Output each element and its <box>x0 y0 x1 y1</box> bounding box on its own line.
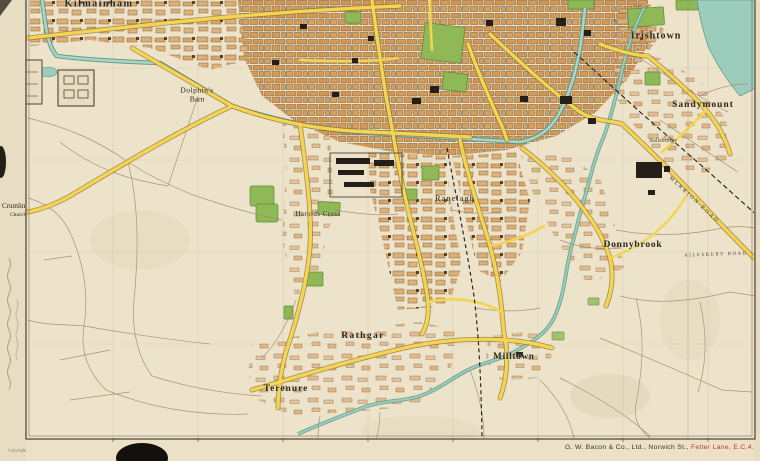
map-artwork <box>0 0 760 461</box>
map-canvas[interactable]: Kilmainham Dolphin's Barn Irishtown Sand… <box>0 0 760 461</box>
label-crumlin: Crumlin <box>2 202 25 210</box>
publisher-name: G. W. Bacon & Co., Ltd., Norwich St., <box>565 444 689 451</box>
label-sandymount: Sandymount <box>672 100 734 110</box>
label-kilmainham: Kilmainham <box>65 0 134 10</box>
label-dolphins: Dolphin's <box>180 86 213 95</box>
label-ballsbridge: Ballsbridge <box>649 138 677 144</box>
label-harolds-cross: Harolds Cross <box>295 210 340 218</box>
label-ranelagh: Ranelagh <box>435 193 475 203</box>
label-terenure: Terenure <box>264 384 309 394</box>
label-rathgar: Rathgar <box>341 331 385 341</box>
label-barn: Barn <box>190 95 205 104</box>
label-crumlin-church: Church <box>10 212 26 218</box>
label-copyright: Copyright <box>8 448 26 453</box>
label-irishtown: Irishtown <box>631 31 682 42</box>
label-milltown: Milltown <box>493 351 534 361</box>
publisher-imprint: G. W. Bacon & Co., Ltd., Norwich St., Fe… <box>565 444 754 451</box>
publisher-address: Fetter Lane, E.C.4. <box>691 444 754 451</box>
label-donnybrook: Donnybrook <box>603 240 662 250</box>
